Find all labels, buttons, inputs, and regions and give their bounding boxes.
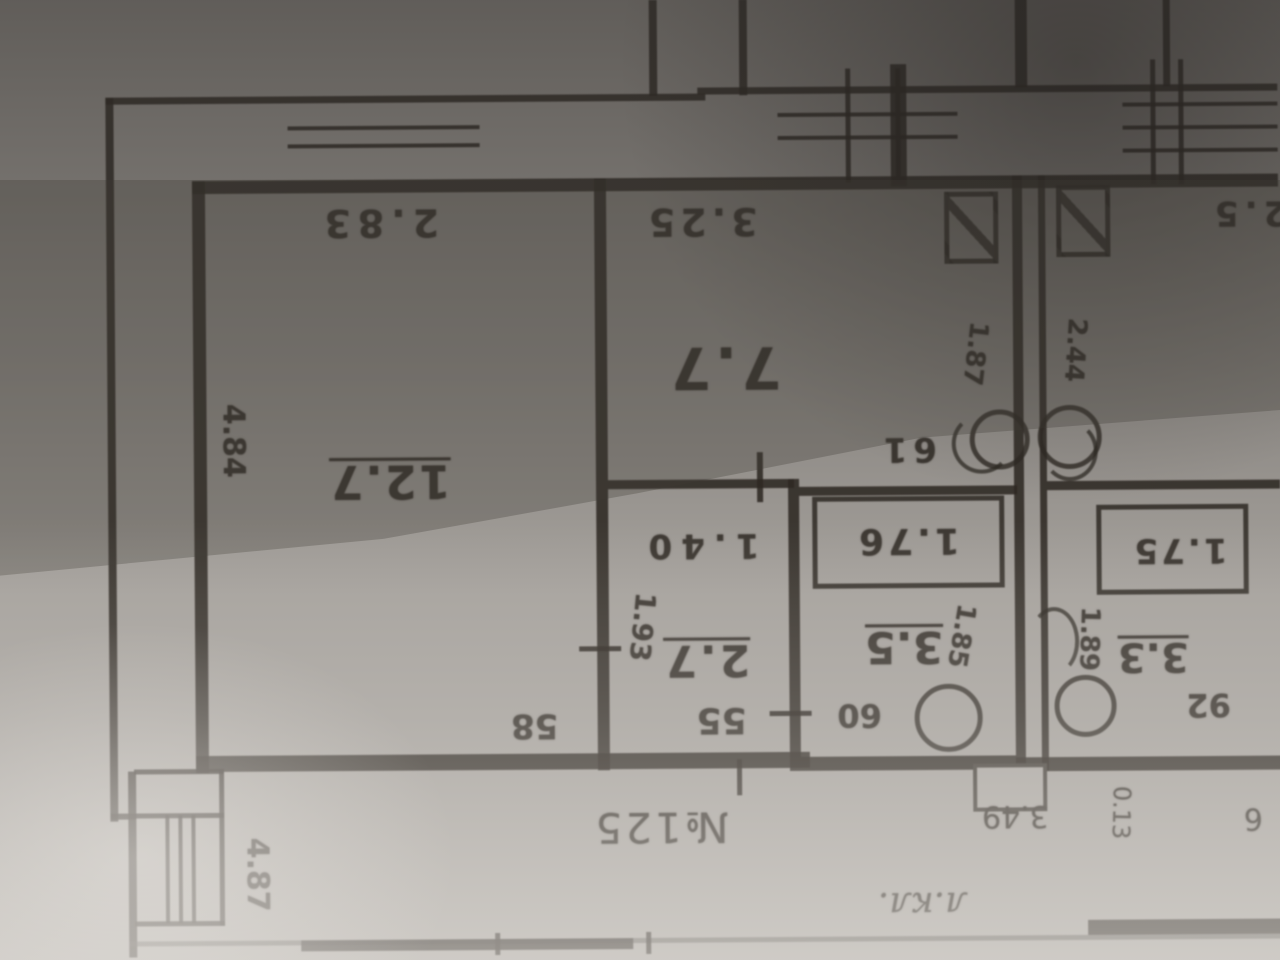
wall bbox=[1088, 919, 1280, 935]
tick-mark bbox=[845, 69, 851, 183]
dimension-label: 1.89 bbox=[1068, 583, 1111, 694]
door-width-label: 60 bbox=[819, 686, 899, 745]
tick-mark bbox=[646, 932, 651, 954]
apartment-number-label: №125 bbox=[550, 791, 770, 865]
window-symbol bbox=[1123, 125, 1278, 130]
window-symbol bbox=[288, 125, 480, 130]
stairwell-note-label: л.кл. bbox=[833, 873, 1013, 936]
wall bbox=[1012, 175, 1026, 771]
wall bbox=[301, 938, 633, 951]
dimension-label: 3.25 bbox=[613, 187, 788, 256]
window-symbol bbox=[1123, 148, 1278, 153]
wall bbox=[649, 0, 658, 96]
tick-mark bbox=[770, 711, 812, 716]
dimension-label: 4.84 bbox=[213, 371, 254, 511]
wall bbox=[128, 772, 137, 958]
window-symbol bbox=[1122, 102, 1277, 107]
floorplan-drawing: 12.7 2.83 4.84 58 7.7 3.25 61 2.7 1.40 1… bbox=[0, 0, 1280, 960]
tick-mark bbox=[495, 933, 500, 955]
wall bbox=[192, 181, 209, 773]
toilet-icon bbox=[914, 684, 982, 752]
tick-mark bbox=[737, 759, 742, 795]
tick-mark bbox=[757, 452, 763, 502]
tick-mark bbox=[1150, 59, 1156, 184]
dimension-label: 0.13 bbox=[1102, 762, 1141, 863]
dimension-label: 1.85 bbox=[932, 578, 990, 693]
wall bbox=[739, 0, 748, 95]
bathtub-size-label: 1.75 bbox=[1114, 520, 1244, 581]
window-symbol bbox=[288, 143, 480, 148]
dimension-label: 1.87 bbox=[948, 287, 1003, 421]
vent-shaft-icon bbox=[1056, 185, 1111, 257]
door-width-label: 55 bbox=[677, 689, 765, 752]
wall bbox=[1015, 0, 1028, 87]
wall bbox=[594, 178, 610, 770]
dimension-label: 3.49 bbox=[950, 785, 1080, 848]
window-symbol bbox=[778, 135, 958, 140]
vent-shaft-icon bbox=[944, 191, 999, 263]
wall bbox=[1038, 175, 1049, 771]
tick-mark bbox=[895, 68, 901, 182]
floorplan-photo: 12.7 2.83 4.84 58 7.7 3.25 61 2.7 1.40 1… bbox=[0, 0, 1280, 960]
stairs-icon bbox=[191, 815, 196, 923]
stairs-icon bbox=[178, 815, 183, 923]
door-width-label: 58 bbox=[499, 698, 571, 753]
dimension-label: 2.44 bbox=[1051, 289, 1098, 411]
room-area-label: 2.5 bbox=[1210, 183, 1280, 242]
door-width-label: 92 bbox=[1173, 676, 1243, 734]
dimension-label: 2.83 bbox=[278, 191, 478, 254]
window-symbol bbox=[777, 112, 957, 117]
wall bbox=[608, 479, 794, 489]
dimension-label: 6 bbox=[1232, 794, 1274, 844]
wall bbox=[799, 485, 1017, 496]
bathtub-size-label: 1.76 bbox=[826, 510, 988, 573]
wall bbox=[1163, 0, 1171, 86]
tick-mark bbox=[579, 646, 621, 651]
wall bbox=[1047, 480, 1280, 491]
wall bbox=[105, 94, 705, 105]
room-area-label: 7.7 bbox=[651, 321, 798, 414]
stairs-icon bbox=[219, 769, 225, 926]
wall bbox=[697, 84, 1277, 95]
dimension-label: 4.87 bbox=[237, 805, 278, 945]
wall bbox=[1016, 756, 1280, 772]
wall bbox=[196, 752, 810, 772]
room-area-label: 12.7 bbox=[320, 449, 460, 514]
tick-mark bbox=[1178, 59, 1184, 184]
wall bbox=[788, 479, 801, 771]
door-arc-icon bbox=[952, 413, 1012, 473]
door-width-label: 61 bbox=[855, 423, 960, 476]
stairs-icon bbox=[165, 815, 170, 923]
door-arc-icon bbox=[1042, 421, 1098, 481]
wall bbox=[105, 98, 118, 822]
